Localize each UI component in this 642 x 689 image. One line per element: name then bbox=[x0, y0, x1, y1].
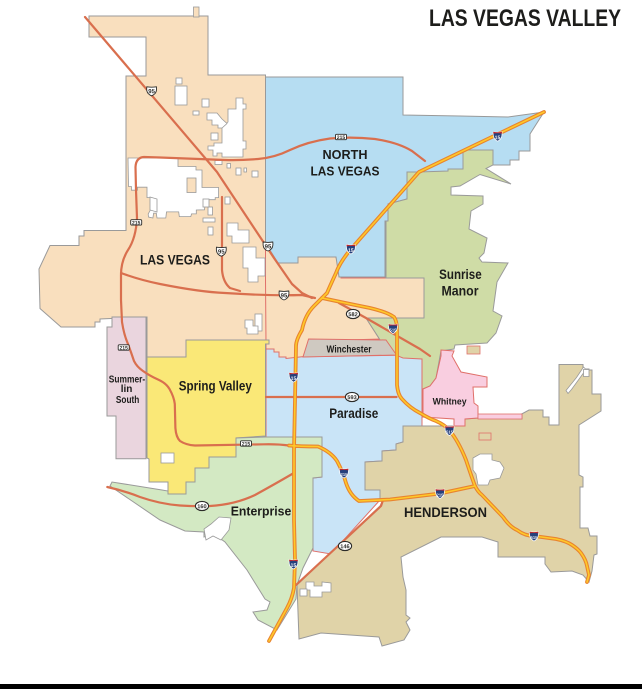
svg-text:NORTH: NORTH bbox=[323, 148, 368, 162]
svg-text:Enterprise: Enterprise bbox=[231, 504, 292, 519]
svg-text:Spring Valley: Spring Valley bbox=[179, 378, 252, 393]
svg-text:HENDERSON: HENDERSON bbox=[404, 504, 487, 520]
svg-text:LAS VEGAS: LAS VEGAS bbox=[311, 164, 380, 179]
svg-text:LAS VEGAS: LAS VEGAS bbox=[140, 252, 210, 268]
svg-text:Manor: Manor bbox=[442, 283, 480, 298]
svg-text:South: South bbox=[116, 395, 139, 406]
svg-text:LAS VEGAS VALLEY: LAS VEGAS VALLEY bbox=[429, 5, 621, 32]
svg-text:lin: lin bbox=[121, 384, 133, 395]
svg-text:Sunrise: Sunrise bbox=[439, 267, 482, 282]
svg-text:Paradise: Paradise bbox=[329, 406, 378, 421]
svg-text:Whitney: Whitney bbox=[433, 396, 468, 407]
svg-text:Winchester: Winchester bbox=[327, 343, 372, 355]
